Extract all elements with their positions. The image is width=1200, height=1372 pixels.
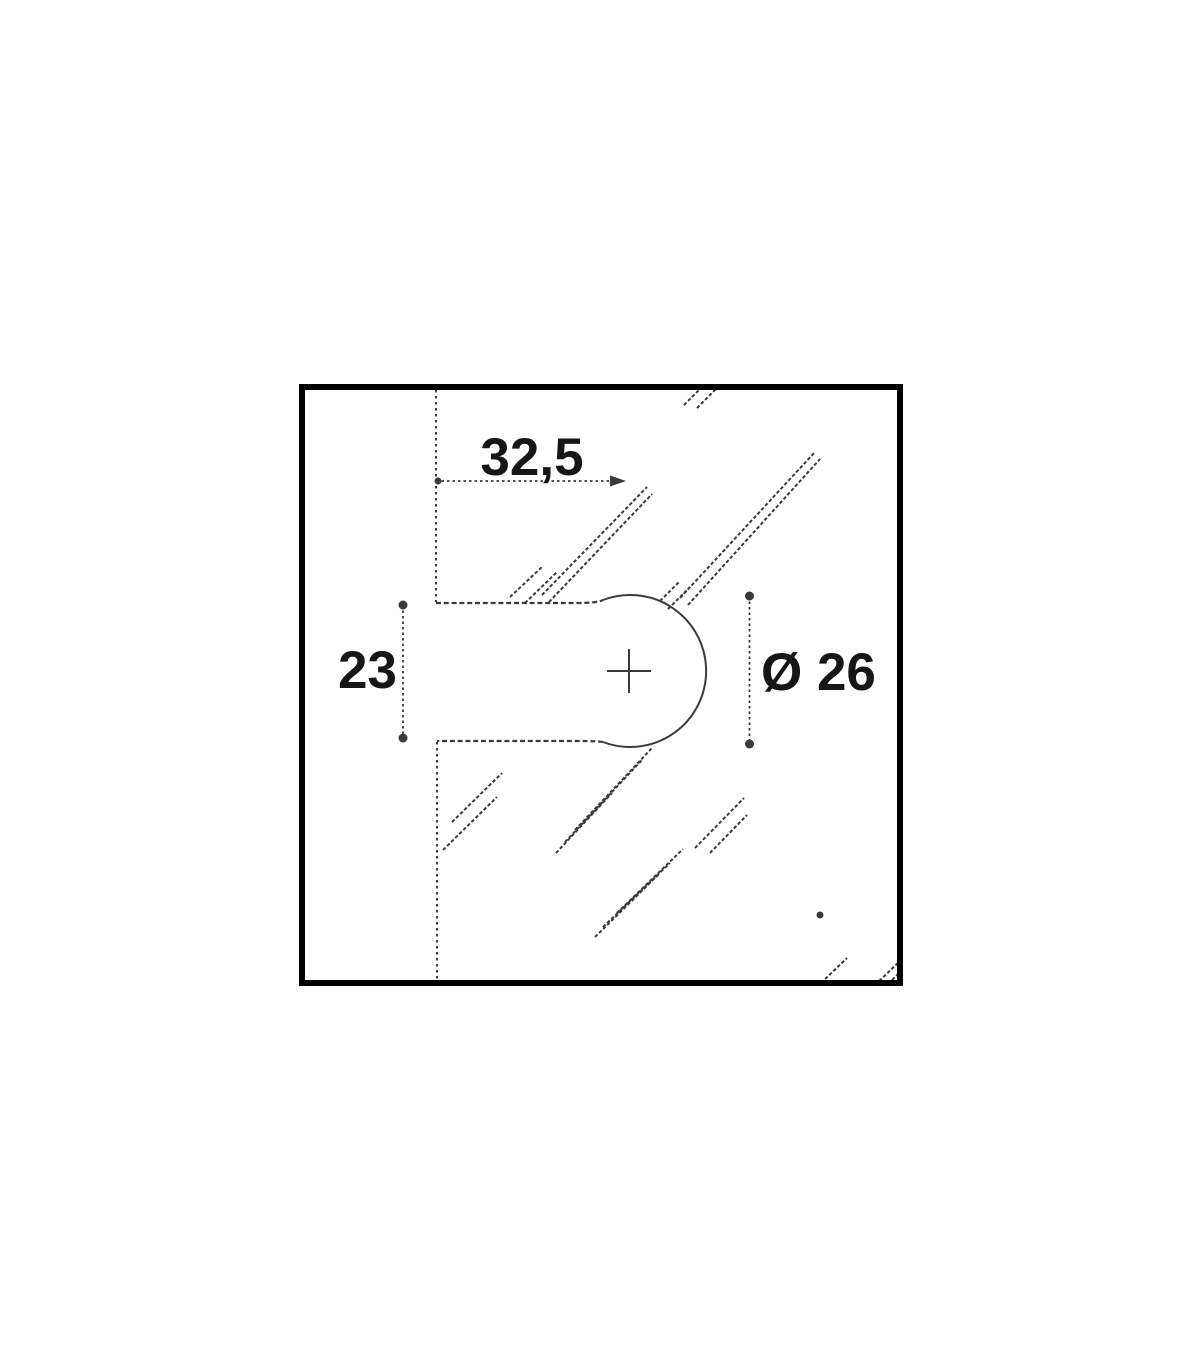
center-mark (607, 649, 651, 693)
hatch-line (697, 389, 716, 408)
dimension-diameter-top-dot (745, 592, 754, 601)
cutout-bottom-edge (437, 741, 603, 742)
hatch-line (525, 572, 557, 603)
stray-speck-dot (817, 912, 824, 919)
technical-drawing: 32,5 23 Ø 26 (0, 0, 1200, 1372)
glass-reflection-hatch-top (510, 385, 820, 609)
hatch-line (452, 773, 502, 822)
page-background: 32,5 23 Ø 26 (0, 0, 1200, 1372)
hatch-line (668, 587, 690, 609)
dimension-diameter-label: Ø 26 (761, 643, 876, 702)
hatch-line (510, 566, 543, 597)
hatch-line (680, 452, 815, 598)
dimension-width-arrow (610, 476, 626, 487)
cutout-top-edge (436, 600, 603, 603)
dimension-slot-bottom-dot (399, 734, 408, 743)
dimension-width-start-dot (435, 478, 442, 485)
hatch-line (695, 798, 744, 848)
dimension-diameter: Ø 26 (745, 592, 876, 749)
dimension-slot-top-dot (399, 601, 408, 610)
hatch-line (542, 487, 647, 595)
hatch-line (710, 815, 747, 853)
dimension-width-label: 32,5 (480, 428, 583, 487)
hatch-line (595, 873, 660, 937)
hatch-line (660, 581, 680, 601)
dimension-width: 32,5 (435, 428, 627, 487)
hatch-line (549, 494, 652, 602)
drawing-content: 32,5 23 Ø 26 (338, 385, 906, 988)
hatch-line (821, 958, 847, 983)
glass-reflection-hatch-bottom (443, 748, 906, 988)
dimension-slot-label: 23 (338, 641, 397, 700)
hatch-line (688, 459, 820, 605)
hatch-line (556, 793, 612, 853)
dimension-diameter-bottom-dot (745, 740, 754, 749)
dimension-slot: 23 (338, 601, 407, 743)
